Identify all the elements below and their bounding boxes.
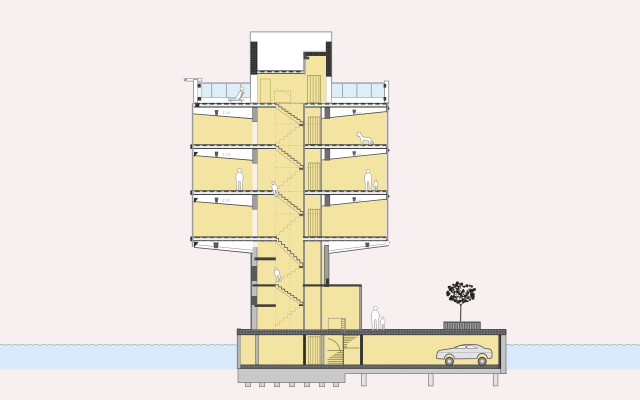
- svg-text:2 1 6: 2 1 6: [223, 199, 231, 203]
- svg-text:2 1 6: 2 1 6: [223, 153, 231, 157]
- svg-text:2 1 6: 2 1 6: [354, 153, 362, 157]
- svg-text:2 1 6: 2 1 6: [354, 112, 362, 116]
- svg-text:2 1 6: 2 1 6: [223, 111, 231, 115]
- svg-text:2 1 6: 2 1 6: [354, 199, 362, 203]
